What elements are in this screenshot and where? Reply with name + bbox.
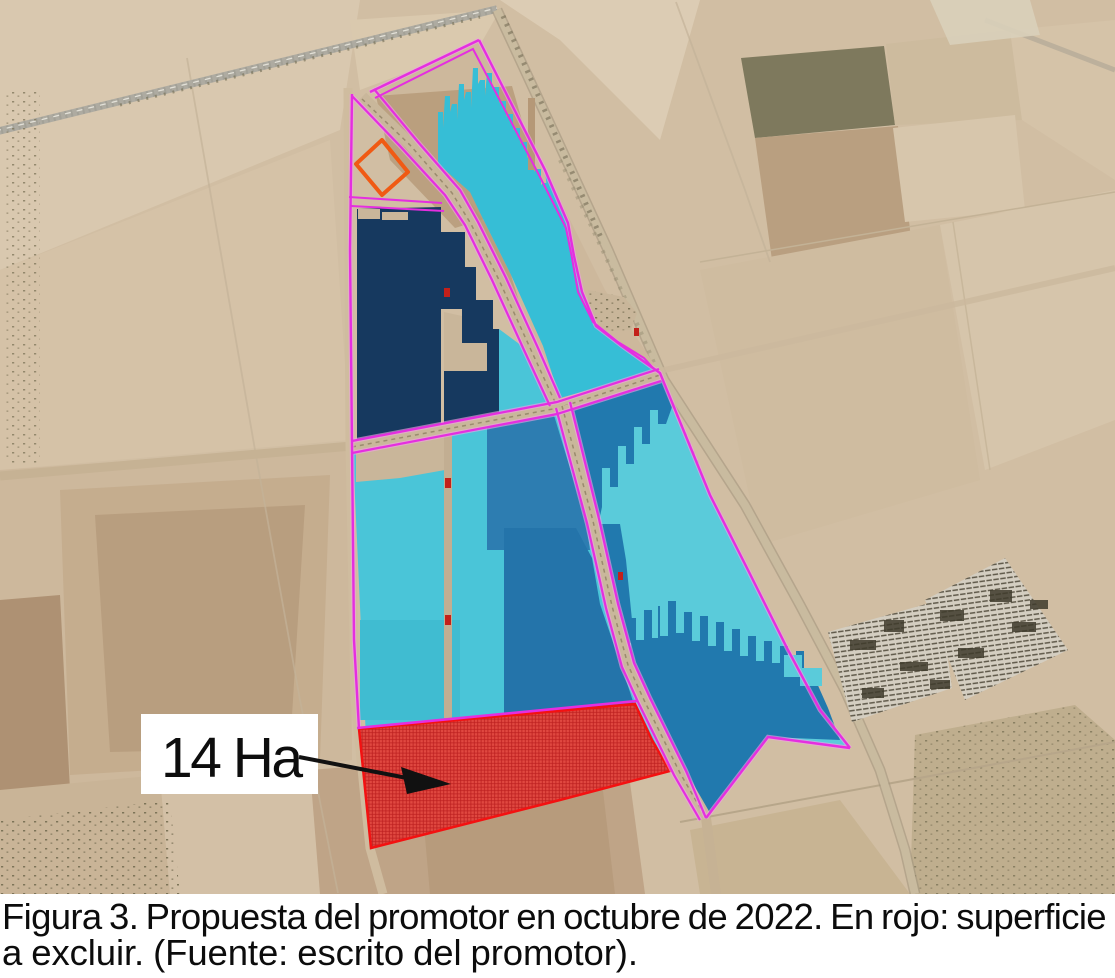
svg-text:14 Ha: 14 Ha <box>161 726 303 790</box>
